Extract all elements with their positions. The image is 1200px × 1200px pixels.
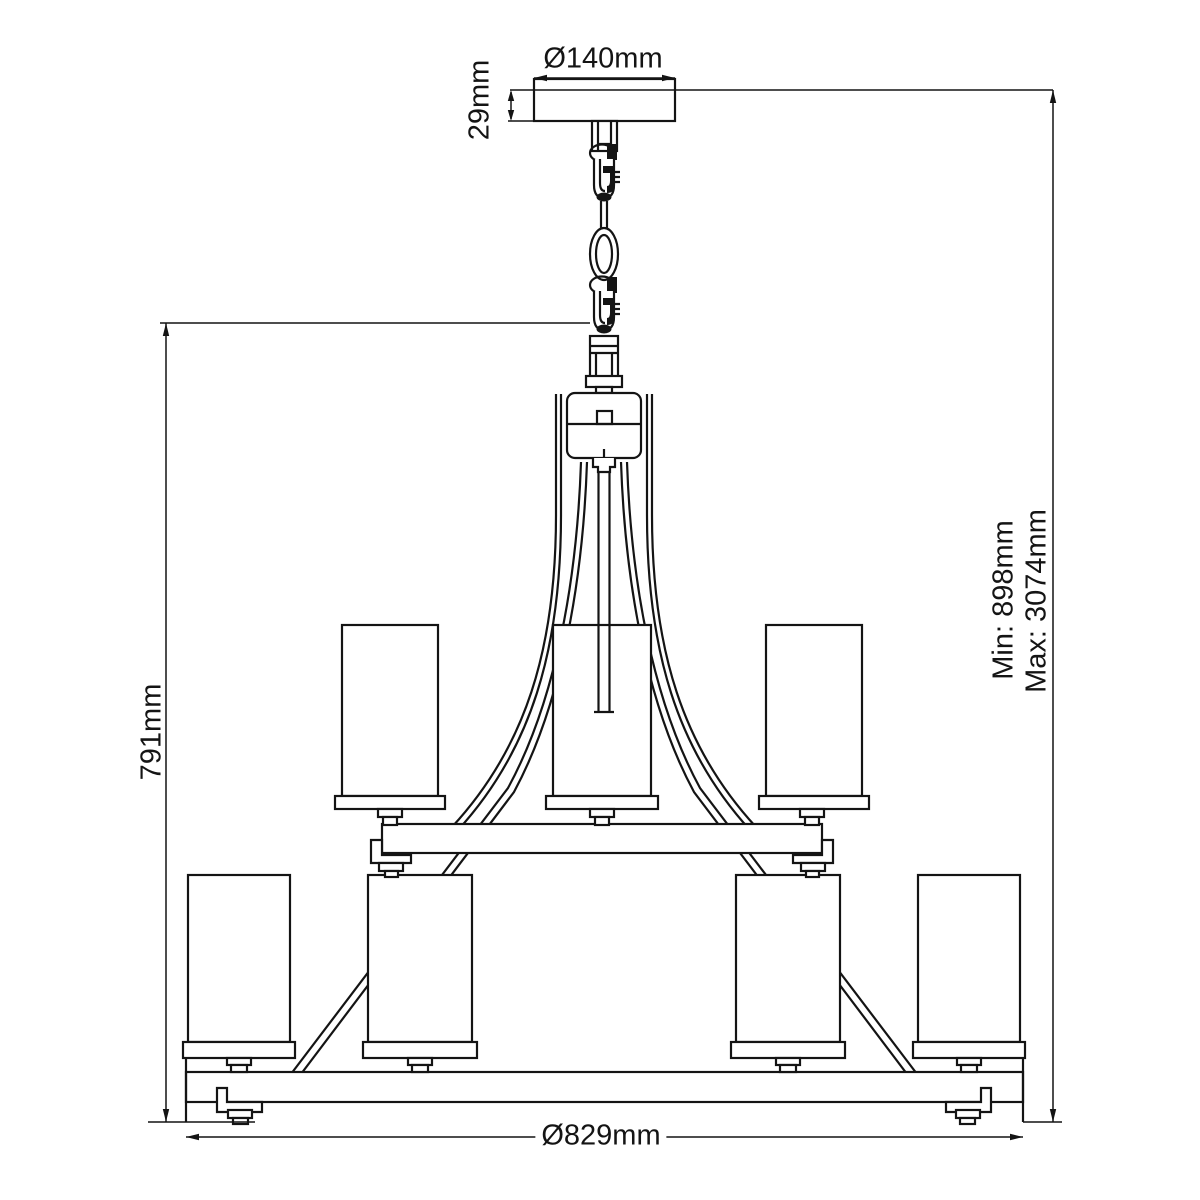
suspension-chain bbox=[586, 121, 622, 393]
upper-shade-center bbox=[546, 625, 658, 825]
chandelier-dimension-drawing: Ø140mm 29mm 791mm Min: 898mm Max: 3074mm… bbox=[0, 0, 1200, 1200]
lower-shade-inner-right bbox=[731, 875, 845, 1072]
dim-canopy-diameter-label: Ø140mm bbox=[543, 45, 662, 74]
upper-tier-bar bbox=[382, 824, 822, 853]
lower-shade-outer-right bbox=[913, 875, 1025, 1072]
dim-fixture-diameter-label: Ø829mm bbox=[535, 1120, 666, 1153]
lower-tier-bar bbox=[186, 1072, 1023, 1102]
dim-suspension-max-label: Max: 3074mm bbox=[1023, 509, 1052, 693]
upper-shade-left bbox=[335, 625, 445, 825]
lower-shade-outer-left bbox=[183, 875, 295, 1072]
dim-suspension-min-label: Min: 898mm bbox=[990, 520, 1019, 680]
dim-fixture-height-label: 791mm bbox=[138, 684, 167, 781]
central-hub bbox=[567, 393, 641, 472]
lower-shade-inner-left bbox=[363, 875, 477, 1072]
upper-shade-right bbox=[759, 625, 869, 825]
dim-canopy-height-label: 29mm bbox=[466, 60, 495, 141]
ceiling-canopy bbox=[534, 79, 675, 121]
